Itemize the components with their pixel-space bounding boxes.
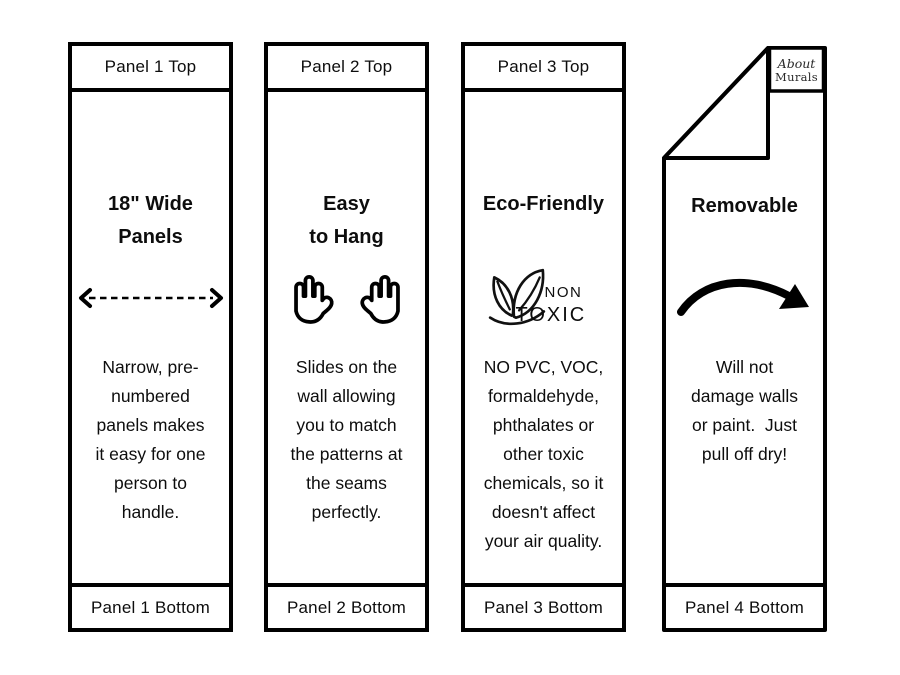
panel-1-bottom-box: Panel 1 Bottom bbox=[72, 583, 229, 628]
panel-1-top-label: Panel 1 Top bbox=[105, 57, 197, 77]
logo-murals-text: Murals bbox=[775, 71, 818, 83]
panel-1-body: 18" Wide Panels Narrow, pre- numbered pa… bbox=[72, 92, 229, 583]
panel-2-top-box: Panel 2 Top bbox=[268, 46, 425, 92]
panel-3-bottom-box: Panel 3 Bottom bbox=[465, 583, 622, 628]
panel-2-heading: Easy to Hang bbox=[268, 188, 425, 254]
folded-sheet-outline bbox=[662, 46, 827, 632]
panel-2-body: Easy to Hang Slides on the wall allowing… bbox=[268, 92, 425, 583]
panel-2-bottom-label: Panel 2 Bottom bbox=[287, 598, 406, 618]
panel-3-heading: Eco-Friendly bbox=[465, 188, 622, 221]
aboutmurals-logo: About Murals bbox=[770, 51, 823, 89]
panel-1-icon-zone bbox=[72, 263, 229, 333]
panel-1: Panel 1 Top 18" Wide Panels Narrow, pre-… bbox=[68, 42, 233, 632]
open-hand-left-icon bbox=[289, 270, 334, 326]
panel-3-description: NO PVC, VOC, formaldehyde, phthalates or… bbox=[466, 353, 621, 556]
panel-1-heading: 18" Wide Panels bbox=[72, 188, 229, 254]
panel-3-body: Eco-Friendly NON TOXIC NO PVC, VOC, form… bbox=[465, 92, 622, 583]
panel-2-bottom-box: Panel 2 Bottom bbox=[268, 583, 425, 628]
non-toxic-text-non: NON bbox=[545, 284, 583, 301]
double-headed-dashed-arrow-icon bbox=[76, 287, 226, 309]
panel-4-description: Will not damage walls or paint. Just pul… bbox=[663, 353, 826, 469]
panel-4: About Murals Removable Will not damage w… bbox=[662, 46, 827, 632]
panel-3: Panel 3 Top Eco-Friendly NON TOXIC NO P bbox=[461, 42, 626, 632]
panel-3-top-label: Panel 3 Top bbox=[498, 57, 590, 77]
panel-3-top-box: Panel 3 Top bbox=[465, 46, 622, 92]
panel-4-bottom-box: Panel 4 Bottom bbox=[666, 587, 823, 628]
fold-corner-flap bbox=[664, 48, 768, 158]
panel-3-bottom-label: Panel 3 Bottom bbox=[484, 598, 603, 618]
panel-2-description: Slides on the wall allowing you to match… bbox=[269, 353, 424, 527]
panel-2: Panel 2 Top Easy to Hang Slides on the w… bbox=[264, 42, 429, 632]
panel-3-icon-zone: NON TOXIC bbox=[465, 263, 622, 333]
infographic-canvas: Panel 1 Top 18" Wide Panels Narrow, pre-… bbox=[0, 0, 900, 675]
logo-about-text: About bbox=[778, 57, 816, 70]
panel-4-bottom-label: Panel 4 Bottom bbox=[685, 598, 804, 618]
panel-2-icon-zone bbox=[268, 263, 425, 333]
panel-1-bottom-label: Panel 1 Bottom bbox=[91, 598, 210, 618]
non-toxic-text-toxic: TOXIC bbox=[516, 304, 587, 327]
panel-1-top-box: Panel 1 Top bbox=[72, 46, 229, 92]
non-toxic-badge: NON TOXIC bbox=[487, 264, 601, 332]
panel-2-top-label: Panel 2 Top bbox=[301, 57, 393, 77]
panel-4-icon-zone bbox=[662, 261, 827, 331]
panel-1-description: Narrow, pre- numbered panels makes it ea… bbox=[73, 353, 228, 527]
curved-arrow-icon bbox=[675, 270, 815, 322]
open-hand-right-icon bbox=[360, 270, 405, 326]
panel-4-heading: Removable bbox=[662, 190, 827, 223]
